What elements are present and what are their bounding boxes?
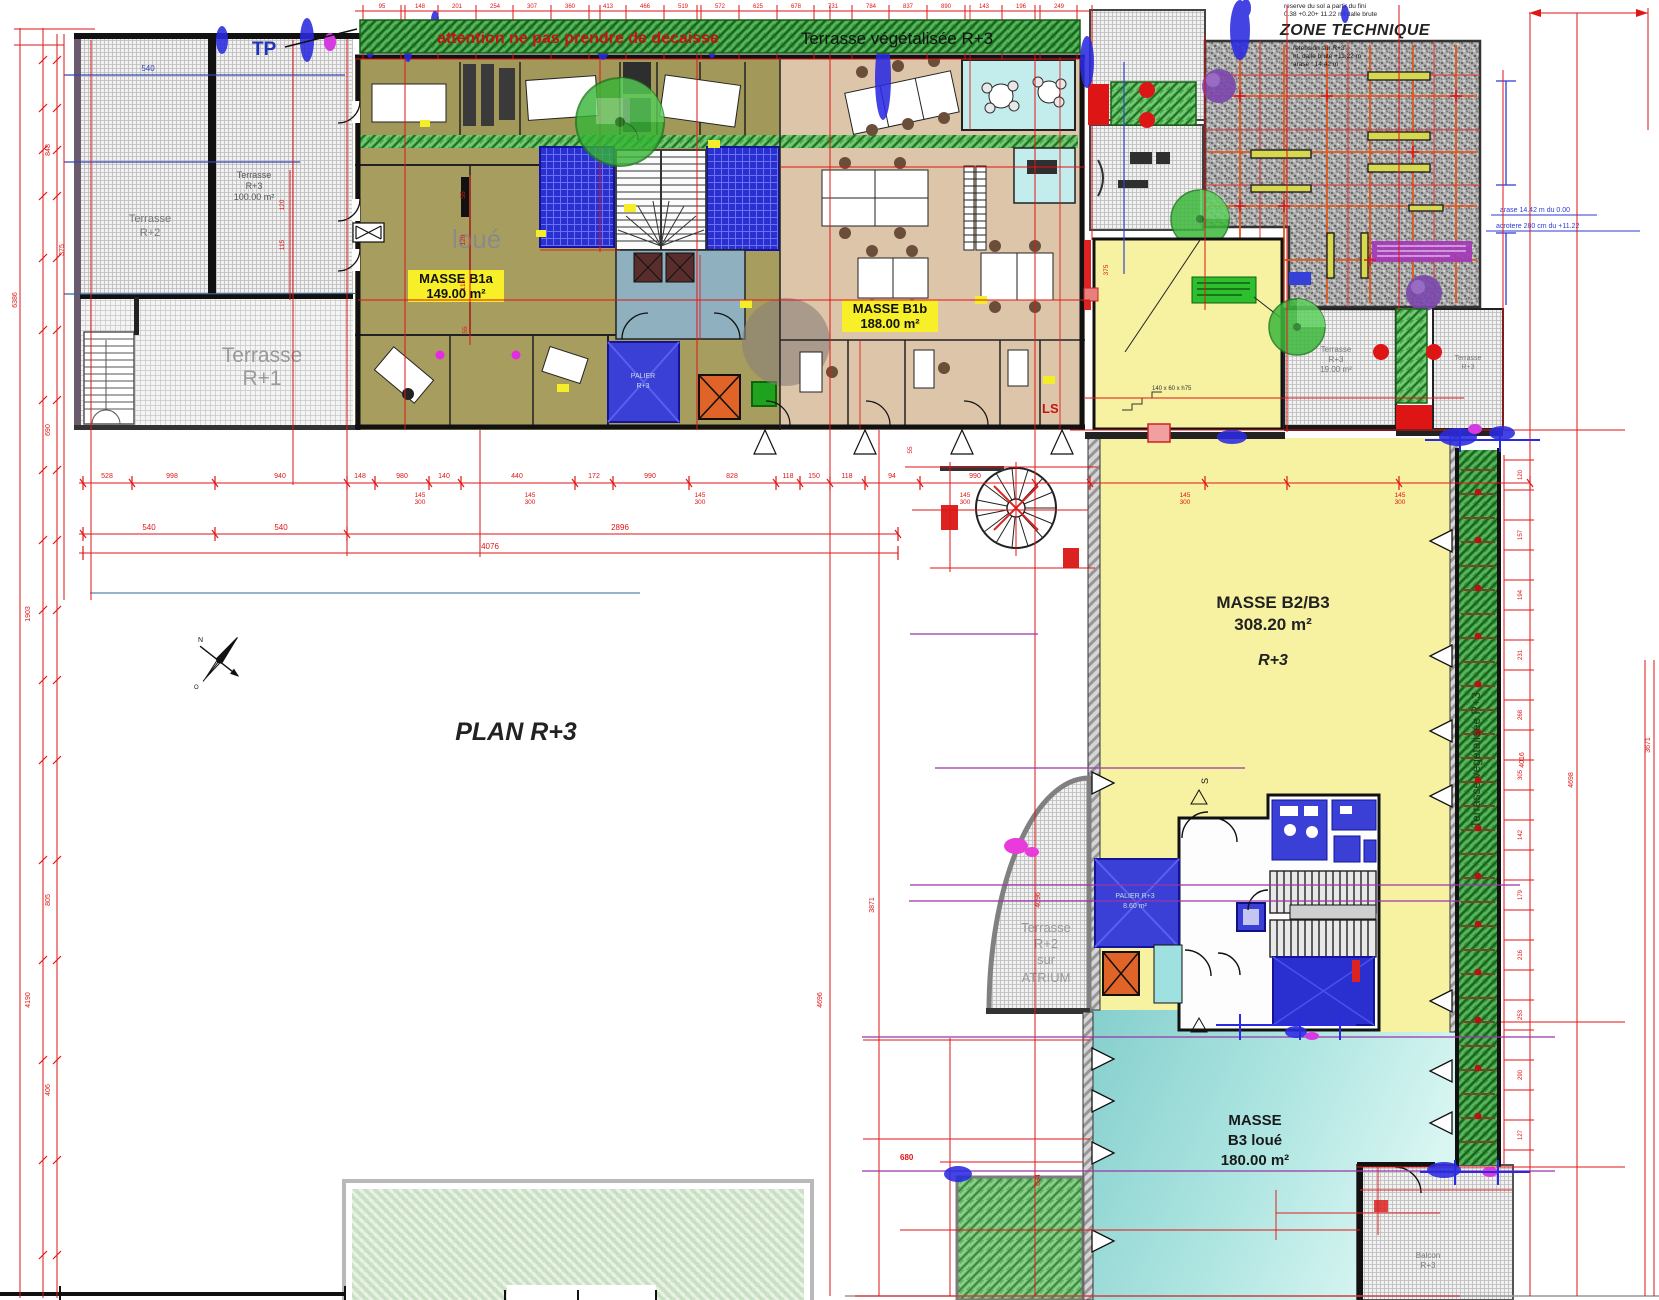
- svg-text:118: 118: [841, 473, 852, 480]
- svg-text:805: 805: [45, 894, 52, 906]
- svg-text:PALIER: PALIER: [631, 373, 655, 380]
- svg-text:118: 118: [782, 473, 793, 480]
- svg-text:O: O: [194, 685, 199, 691]
- svg-text:MASSE B2/B3: MASSE B2/B3: [1216, 593, 1329, 612]
- svg-text:R+3: R+3: [1329, 355, 1344, 364]
- svg-text:980: 980: [396, 473, 408, 480]
- svg-text:R+2: R+2: [140, 227, 161, 239]
- svg-text:572: 572: [715, 4, 726, 10]
- svg-text:519: 519: [678, 4, 689, 10]
- svg-text:Terrasse végétalisée R+3: Terrasse végétalisée R+3: [1469, 692, 1483, 828]
- svg-text:acrotere 280 cm du +11.22: acrotere 280 cm du +11.22: [1496, 223, 1579, 230]
- svg-text:PLAN R+3: PLAN R+3: [455, 718, 577, 746]
- svg-text:55: 55: [907, 446, 914, 454]
- svg-text:300: 300: [1180, 499, 1191, 506]
- svg-text:990: 990: [969, 473, 981, 480]
- svg-text:440: 440: [511, 473, 523, 480]
- svg-text:254: 254: [490, 4, 501, 10]
- svg-text:360: 360: [565, 4, 576, 10]
- svg-text:R+3: R+3: [1461, 364, 1474, 371]
- svg-text:120: 120: [1518, 469, 1524, 480]
- svg-text:MASSE: MASSE: [1228, 1112, 1281, 1129]
- svg-text:ZONE TECHNIQUE: ZONE TECHNIQUE: [1279, 22, 1431, 39]
- svg-text:375: 375: [1103, 264, 1110, 275]
- svg-text:837: 837: [903, 4, 914, 10]
- svg-text:Balcon: Balcon: [1416, 1251, 1440, 1260]
- svg-text:179: 179: [1518, 889, 1524, 900]
- svg-text:95: 95: [379, 4, 386, 10]
- svg-text:540: 540: [274, 523, 288, 532]
- svg-text:300: 300: [960, 499, 971, 506]
- svg-text:55: 55: [460, 191, 467, 199]
- svg-text:attention ne pas prendre de de: attention ne pas prendre de decaisse: [437, 30, 719, 47]
- svg-text:R+3: R+3: [636, 383, 649, 390]
- svg-text:625: 625: [753, 4, 764, 10]
- svg-text:R+3: R+3: [1421, 1261, 1436, 1270]
- svg-text:145: 145: [525, 492, 536, 499]
- svg-text:100.00 m²: 100.00 m²: [234, 192, 275, 202]
- svg-text:127: 127: [1518, 1129, 1524, 1140]
- svg-text:Terrasse: Terrasse: [1321, 345, 1352, 354]
- svg-text:157: 157: [1518, 529, 1524, 540]
- svg-text:sur: sur: [1037, 952, 1056, 967]
- svg-text:731: 731: [828, 4, 839, 10]
- svg-text:TP: TP: [252, 39, 277, 60]
- svg-text:145: 145: [1180, 492, 1191, 499]
- svg-text:2896: 2896: [611, 523, 629, 532]
- svg-text:142: 142: [1518, 829, 1524, 840]
- svg-text:19.00 m²: 19.00 m²: [1320, 365, 1352, 374]
- svg-text:55: 55: [462, 326, 469, 334]
- svg-text:4696: 4696: [817, 992, 824, 1008]
- svg-text:890: 890: [941, 4, 952, 10]
- svg-text:145: 145: [960, 492, 971, 499]
- svg-text:arase 14.42 m du 0.00: arase 14.42 m du 0.00: [1500, 207, 1570, 214]
- svg-text:406: 406: [45, 1084, 52, 1096]
- svg-text:115: 115: [460, 279, 467, 290]
- svg-text:94: 94: [888, 473, 896, 480]
- svg-text:1903: 1903: [25, 606, 32, 622]
- svg-text:0.38 +0.20+ 11.22 ml dalle bru: 0.38 +0.20+ 11.22 ml dalle brute: [1284, 11, 1377, 18]
- svg-text:268: 268: [1518, 709, 1524, 720]
- svg-text:253: 253: [1518, 1009, 1524, 1020]
- svg-text:196: 196: [1016, 4, 1027, 10]
- svg-text:540: 540: [142, 523, 156, 532]
- svg-text:375: 375: [59, 244, 66, 256]
- svg-text:120: 120: [279, 199, 286, 210]
- svg-text:300: 300: [695, 499, 706, 506]
- svg-text:148: 148: [354, 473, 366, 480]
- svg-text:828: 828: [726, 473, 738, 480]
- svg-text:Terrasse: Terrasse: [222, 344, 303, 367]
- svg-text:308.20 m²: 308.20 m²: [1234, 615, 1312, 634]
- svg-text:6386: 6386: [12, 292, 19, 308]
- svg-text:194: 194: [1518, 589, 1524, 600]
- svg-text:466: 466: [640, 4, 651, 10]
- svg-text:4016: 4016: [1519, 752, 1526, 768]
- svg-text:140 x 60 x h75: 140 x 60 x h75: [1152, 386, 1192, 392]
- svg-text:145: 145: [415, 492, 426, 499]
- svg-text:307: 307: [527, 4, 538, 10]
- svg-text:3871: 3871: [869, 897, 876, 913]
- svg-text:249: 249: [1054, 4, 1065, 10]
- svg-text:784: 784: [866, 4, 877, 10]
- svg-text:LS: LS: [1042, 401, 1059, 416]
- svg-text:150: 150: [808, 473, 820, 480]
- svg-text:MASSE B1b: MASSE B1b: [853, 301, 927, 316]
- svg-text:140: 140: [438, 473, 450, 480]
- svg-text:PALIER R+3: PALIER R+3: [1115, 893, 1154, 900]
- svg-text:4698: 4698: [1568, 772, 1575, 788]
- svg-text:188.00 m²: 188.00 m²: [860, 316, 920, 331]
- svg-text:8.60 m²: 8.60 m²: [1123, 903, 1147, 910]
- svg-text:148: 148: [415, 4, 426, 10]
- svg-text:N: N: [198, 637, 203, 644]
- svg-text:R+3: R+3: [1258, 652, 1288, 669]
- svg-text:680: 680: [900, 1153, 914, 1162]
- svg-text:120: 120: [460, 234, 467, 245]
- svg-text:413: 413: [603, 4, 614, 10]
- svg-text:R+1: R+1: [242, 367, 281, 390]
- svg-text:ATRIUM: ATRIUM: [1022, 970, 1071, 985]
- svg-text:300: 300: [1395, 499, 1406, 506]
- svg-text:R+2: R+2: [1034, 936, 1058, 951]
- svg-text:634: 634: [1035, 1174, 1042, 1186]
- svg-text:690: 690: [45, 424, 52, 436]
- svg-text:arase : 14.42 m: arase : 14.42 m: [1293, 61, 1338, 68]
- svg-text:ht. dalle brute +11.22 m: ht. dalle brute +11.22 m: [1293, 53, 1361, 60]
- svg-text:4076: 4076: [481, 542, 499, 551]
- svg-text:MASSE B1a: MASSE B1a: [419, 271, 493, 286]
- svg-text:305: 305: [1518, 769, 1524, 780]
- svg-text:180.00 m²: 180.00 m²: [1221, 1152, 1289, 1169]
- svg-text:Terrasse: Terrasse: [1455, 355, 1482, 362]
- svg-text:115: 115: [279, 239, 286, 250]
- svg-text:143: 143: [979, 4, 990, 10]
- svg-text:848: 848: [45, 144, 52, 156]
- svg-text:retension sur R+3: retension sur R+3: [1293, 45, 1345, 52]
- svg-text:3671: 3671: [1645, 737, 1652, 753]
- svg-text:145: 145: [695, 492, 706, 499]
- svg-text:R+3: R+3: [246, 181, 263, 191]
- svg-text:145: 145: [1395, 492, 1406, 499]
- svg-text:149.00 m²: 149.00 m²: [426, 286, 486, 301]
- svg-text:S: S: [1200, 778, 1210, 784]
- svg-text:4096: 4096: [1035, 892, 1042, 908]
- svg-text:B3 loué: B3 loué: [1228, 1132, 1282, 1149]
- svg-text:Terrasse végétalisée R+3: Terrasse végétalisée R+3: [801, 29, 993, 48]
- svg-text:172: 172: [588, 473, 600, 480]
- svg-text:4190: 4190: [25, 992, 32, 1008]
- svg-text:998: 998: [166, 473, 178, 480]
- svg-text:Terrasse: Terrasse: [129, 213, 171, 225]
- svg-text:300: 300: [525, 499, 536, 506]
- svg-text:528: 528: [101, 473, 113, 480]
- svg-text:290: 290: [1518, 1069, 1524, 1080]
- svg-text:201: 201: [452, 4, 463, 10]
- svg-text:990: 990: [644, 473, 656, 480]
- svg-text:216: 216: [1518, 949, 1524, 960]
- svg-text:540: 540: [141, 64, 155, 73]
- svg-text:231: 231: [1518, 649, 1524, 660]
- svg-text:Terrasse: Terrasse: [1021, 920, 1071, 935]
- svg-text:reserve du sol a partir du fin: reserve du sol a partir du fini: [1284, 3, 1366, 10]
- svg-text:Terrasse: Terrasse: [237, 170, 272, 180]
- svg-text:678: 678: [791, 4, 802, 10]
- svg-text:940: 940: [274, 473, 286, 480]
- svg-text:300: 300: [415, 499, 426, 506]
